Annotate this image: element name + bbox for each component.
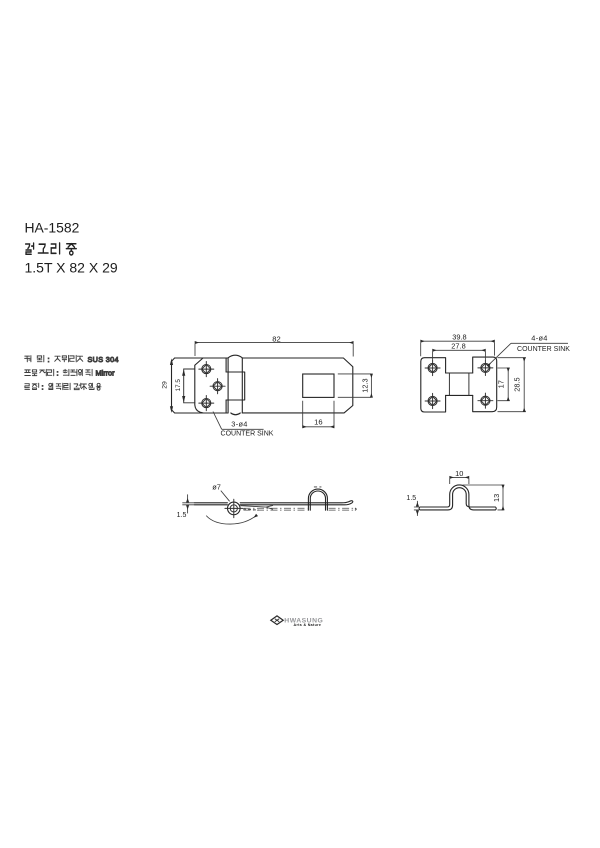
svg-text:10: 10	[455, 469, 463, 478]
svg-text:SUS 304: SUS 304	[88, 355, 119, 364]
svg-text:COUNTER SINK: COUNTER SINK	[517, 346, 570, 353]
svg-text:27.8: 27.8	[451, 342, 465, 351]
svg-text:39.8: 39.8	[452, 332, 466, 341]
svg-text:17.5: 17.5	[175, 379, 182, 392]
svg-text:ø7: ø7	[212, 482, 221, 491]
svg-text:12.3: 12.3	[360, 378, 369, 392]
svg-text:29: 29	[162, 381, 169, 389]
svg-text:82: 82	[272, 335, 280, 344]
svg-text:16: 16	[314, 418, 322, 427]
svg-text::: :	[42, 383, 44, 392]
svg-text::: :	[57, 369, 59, 378]
svg-text:1.5: 1.5	[406, 495, 416, 502]
svg-text:Arts & Nature: Arts & Nature	[294, 623, 322, 627]
svg-text:4-ø4: 4-ø4	[531, 334, 547, 343]
svg-text:17: 17	[497, 380, 506, 388]
svg-text:Mirror: Mirror	[96, 369, 116, 378]
svg-text:1.5: 1.5	[177, 512, 187, 519]
svg-text:28.5: 28.5	[512, 377, 521, 391]
svg-text:HA-1582: HA-1582	[25, 220, 80, 236]
svg-text:1.5T X 82 X 29: 1.5T X 82 X 29	[25, 260, 118, 276]
svg-text:3-ø4: 3-ø4	[231, 419, 247, 428]
svg-text:13: 13	[492, 494, 501, 502]
svg-text::: :	[48, 355, 50, 364]
svg-text:COUNTER SINK: COUNTER SINK	[221, 430, 274, 437]
